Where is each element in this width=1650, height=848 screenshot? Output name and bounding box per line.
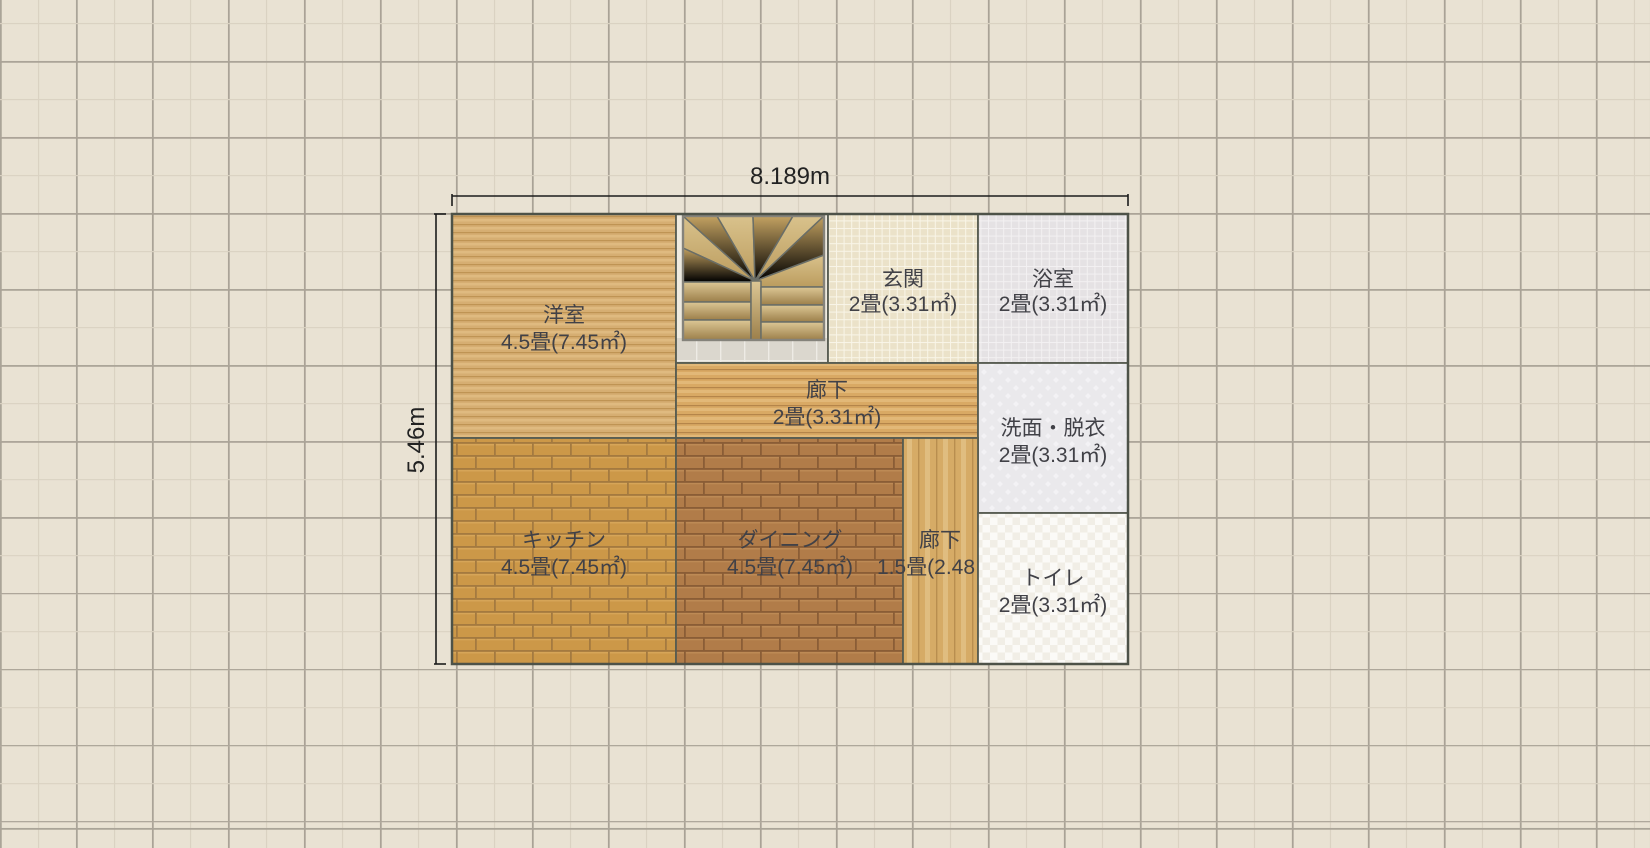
room-size-label: 4.5畳(7.45㎡) (501, 330, 627, 354)
room-label: 廊下 (919, 529, 961, 552)
room-label: 玄関 (882, 268, 924, 291)
room-label: 洗面・脱衣 (1001, 417, 1106, 440)
height-dimension-label: 5.46m (403, 407, 430, 474)
room-size-label: 2畳(3.31㎡) (999, 593, 1108, 617)
room-genkan[interactable]: 玄関 2畳(3.31㎡) (828, 214, 978, 363)
room-size-label: 2畳(3.31㎡) (999, 292, 1108, 316)
room-bath[interactable]: 浴室 2畳(3.31㎡) (978, 214, 1128, 363)
room-size-label: 2畳(3.31㎡) (773, 405, 882, 429)
stair-step (761, 305, 824, 322)
stair-step (683, 282, 751, 302)
floorplan-canvas[interactable]: 洋室 4.5畳(7.45㎡) 玄関 2畳(3.31㎡) 浴室 2畳(3.31㎡)… (0, 0, 1650, 843)
room-label: 浴室 (1032, 268, 1074, 291)
stair-step (761, 287, 824, 305)
room-kitchen[interactable]: キッチン 4.5畳(7.45㎡) (452, 438, 676, 664)
stair-step (683, 302, 751, 320)
room-dining[interactable]: ダイニング 4.5畳(7.45㎡) (676, 438, 903, 664)
floorplan-svg: 洋室 4.5畳(7.45㎡) 玄関 2畳(3.31㎡) 浴室 2畳(3.31㎡)… (0, 0, 1650, 843)
room-senmen[interactable]: 洗面・脱衣 2畳(3.31㎡) (978, 363, 1128, 513)
room-label: 洋室 (543, 304, 585, 327)
room-label: トイレ (1022, 567, 1085, 590)
room-hallway[interactable]: 廊下 2畳(3.31㎡) (676, 363, 978, 438)
room-size-label: 4.5畳(7.45㎡) (727, 555, 853, 579)
room-size-label: 4.5畳(7.45㎡) (501, 555, 627, 579)
stair-step (683, 320, 751, 340)
room-label: 廊下 (806, 379, 848, 402)
room-size-label: 2畳(3.31㎡) (999, 443, 1108, 467)
stair-center-post (751, 281, 761, 340)
stair-landing-tile (676, 338, 828, 363)
width-dimension-label: 8.189m (750, 163, 830, 190)
room-label: ダイニング (738, 529, 843, 552)
stairs-object[interactable] (683, 216, 824, 340)
room-size-label: 2畳(3.31㎡) (849, 292, 958, 316)
room-toilet[interactable]: トイレ 2畳(3.31㎡) (978, 513, 1128, 664)
stair-step (761, 322, 824, 340)
room-label: キッチン (522, 529, 606, 552)
room-yoshitsu[interactable]: 洋室 4.5畳(7.45㎡) (452, 214, 676, 438)
